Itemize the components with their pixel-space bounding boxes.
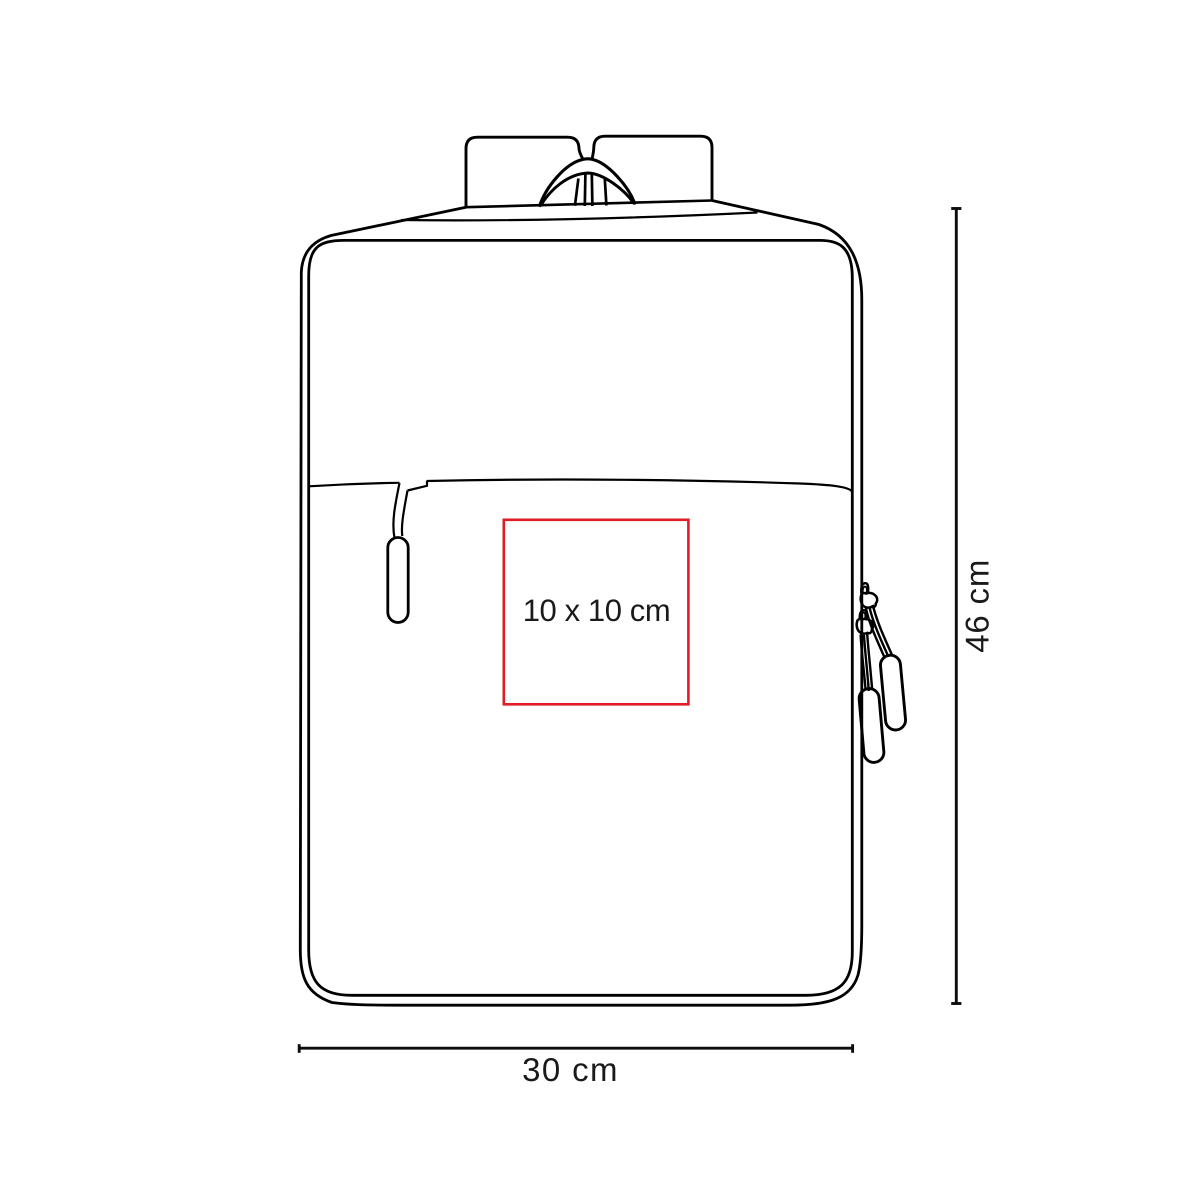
svg-text:46 cm: 46 cm bbox=[959, 559, 996, 653]
svg-text:30 cm: 30 cm bbox=[522, 1051, 619, 1088]
svg-text:10 x 10 cm: 10 x 10 cm bbox=[523, 593, 671, 628]
